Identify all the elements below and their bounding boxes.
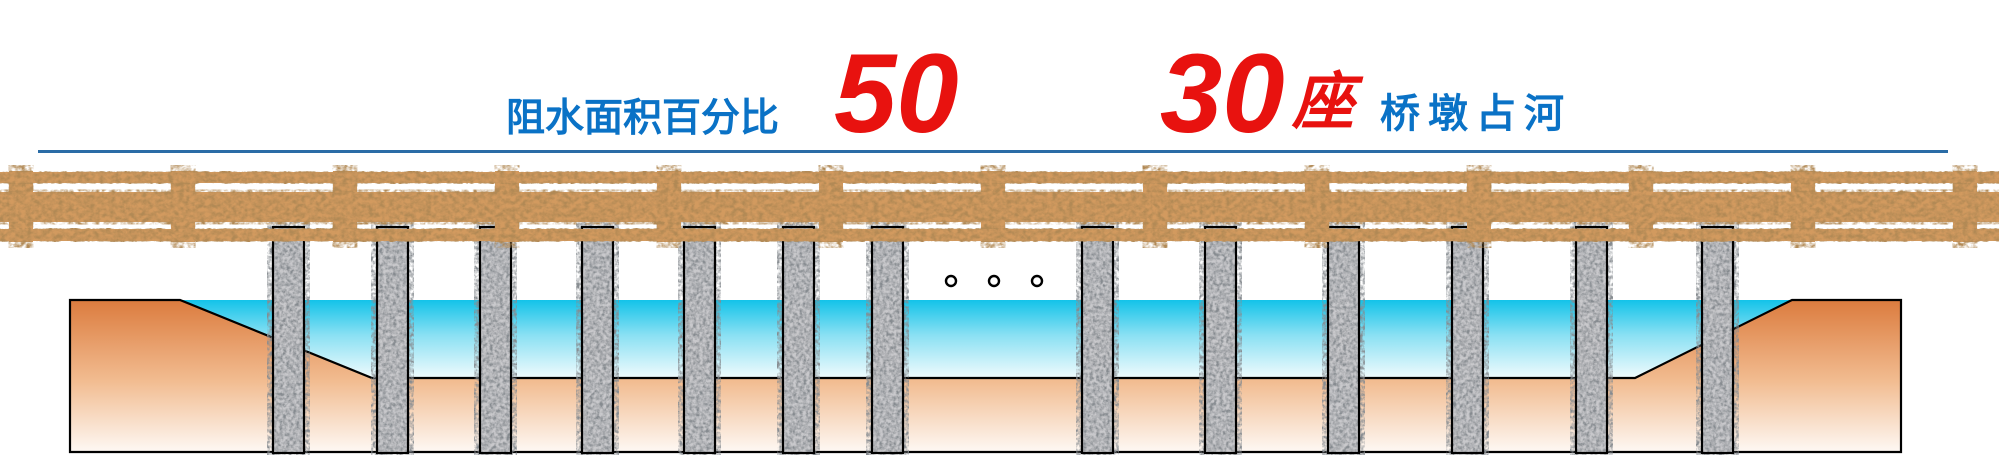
- ellipsis-dot: [989, 276, 999, 286]
- pier-count-unit: 座: [1292, 72, 1354, 134]
- pier: [1328, 227, 1359, 453]
- bridge-deck: [0, 171, 1999, 242]
- pier: [783, 227, 814, 453]
- deck-mid-band: [0, 192, 1999, 222]
- river-water: [75, 300, 1899, 378]
- pier: [1452, 227, 1483, 453]
- deck-top-rail: [0, 172, 1999, 183]
- pier: [684, 227, 715, 453]
- caption-underline: [38, 150, 1948, 153]
- pier: [273, 227, 304, 453]
- pier-label: 桥墩占河: [1380, 94, 1572, 134]
- ellipsis-dot: [1032, 276, 1042, 286]
- pier: [582, 227, 613, 453]
- pier: [1576, 227, 1607, 453]
- ellipsis-dots: [946, 276, 1042, 286]
- pier: [872, 227, 903, 453]
- blockage-label: 阻水面积百分比: [506, 99, 779, 138]
- pier: [1082, 227, 1113, 453]
- slide-canvas: 阻水面积百分比 50 30 座 桥墩占河: [0, 0, 1999, 455]
- bridge-diagram: [0, 0, 1999, 455]
- pier: [1702, 227, 1733, 453]
- ellipsis-dot: [946, 276, 956, 286]
- pier: [377, 227, 408, 453]
- pier: [480, 227, 511, 453]
- pier-count-value: 30: [1160, 38, 1285, 150]
- blockage-value: 50: [834, 38, 959, 150]
- deck-bottom-rail: [0, 229, 1999, 241]
- pier: [1205, 227, 1236, 453]
